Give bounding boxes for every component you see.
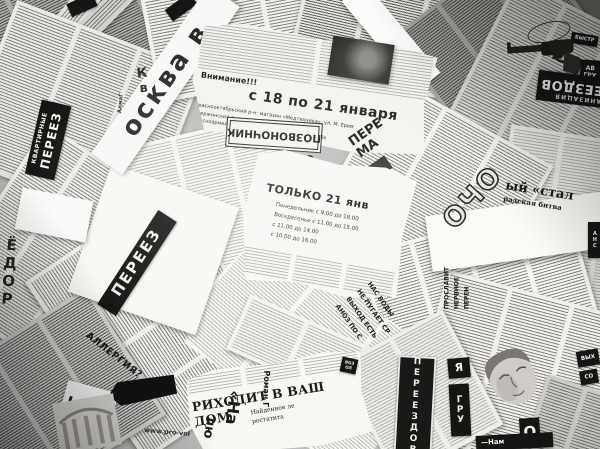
pereezdov-vert-label: ПЕРЕЕЗДОВ — [407, 356, 423, 449]
gru-badge: ГРУ — [449, 384, 472, 437]
ya-label: Я — [454, 361, 464, 374]
arched-building-photo — [52, 393, 122, 449]
roman-byline: Роман Г — [261, 370, 272, 422]
pozvonochnik-label: ПОЗВОНОЧНИК — [226, 126, 321, 145]
newspaper-collage-photo: осква в Кв АлмаГ КВАРТИРНЫЕ ПЕРЕЕЗ Внима… — [0, 0, 600, 449]
ans-label: АНС — [591, 231, 597, 249]
tolko-schedule: Понедельник с 9.00 до 18.00 Воскресенье … — [270, 201, 400, 262]
pereezdov-vertical-banner: ПЕРЕЕЗДОВ — [393, 355, 436, 449]
ans-badge: АНС — [588, 222, 600, 258]
voz-ol-badge: ВОЗ ОЛ — [340, 357, 359, 375]
vyh-label: ВЫХ — [580, 354, 595, 363]
proslavit-headline: ПРОСЛАВИТ НЕРВНОЕ ПЕРЕН — [443, 253, 474, 309]
bystr-label: БЫСТР — [574, 35, 594, 44]
voz-ol-label: ВОЗ ОЛ — [340, 359, 358, 372]
nam-label: —Нам — [481, 438, 505, 447]
nam-bar: —Нам — [476, 432, 554, 449]
so-label: СО — [584, 373, 594, 381]
gru-label: ГРУ — [454, 395, 466, 426]
